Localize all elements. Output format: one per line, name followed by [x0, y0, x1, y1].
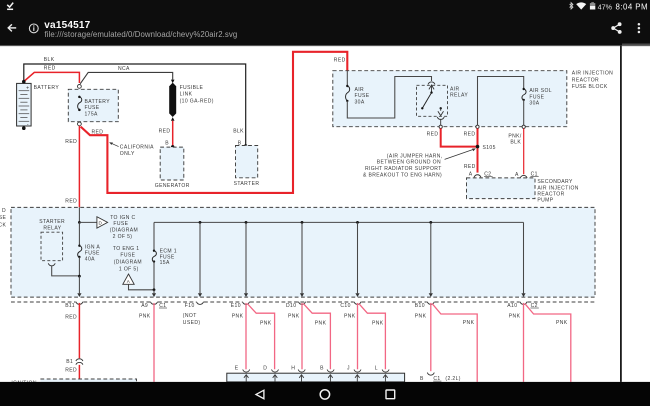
svg-text:ONLY: ONLY — [120, 151, 135, 157]
svg-text:USED): USED) — [183, 320, 201, 326]
svg-text:A: A — [469, 171, 473, 177]
svg-text:B: B — [165, 141, 169, 147]
svg-text:(2.2L): (2.2L) — [445, 376, 460, 382]
svg-text:15A: 15A — [160, 260, 170, 266]
svg-text:PNK: PNK — [344, 313, 356, 319]
svg-text:A9: A9 — [141, 303, 148, 309]
svg-text:BLK: BLK — [510, 140, 521, 146]
svg-text:FUSE: FUSE — [355, 93, 370, 99]
svg-text:B11: B11 — [65, 303, 75, 309]
svg-text:S105: S105 — [483, 145, 496, 151]
svg-text:RELAY: RELAY — [450, 93, 468, 99]
svg-text:GENERATOR: GENERATOR — [155, 183, 190, 189]
svg-text:(10 GA-RED): (10 GA-RED) — [180, 99, 214, 105]
svg-text:AIR SOL: AIR SOL — [529, 88, 552, 94]
svg-text:D: D — [2, 208, 6, 214]
svg-text:RED: RED — [65, 199, 77, 205]
svg-text:STARTER: STARTER — [39, 219, 65, 225]
svg-text:A: A — [515, 172, 519, 178]
svg-text:FUSE: FUSE — [85, 105, 100, 111]
svg-text:PNK: PNK — [288, 313, 300, 319]
svg-text:BLK: BLK — [44, 57, 55, 63]
svg-text:A10: A10 — [507, 303, 517, 309]
svg-text:PNK: PNK — [556, 320, 568, 326]
svg-text:TO IGN C: TO IGN C — [110, 215, 135, 221]
svg-text:FUSE BLOCK: FUSE BLOCK — [572, 84, 608, 90]
svg-text:PNK: PNK — [372, 320, 384, 326]
svg-text:RED: RED — [334, 58, 346, 64]
svg-text:FUSE: FUSE — [529, 94, 544, 100]
svg-text:PNK: PNK — [260, 320, 272, 326]
svg-text:(DIAGRAM: (DIAGRAM — [110, 228, 138, 234]
svg-text:PNK: PNK — [415, 313, 427, 319]
svg-text:(DIAGRAM: (DIAGRAM — [114, 259, 142, 265]
svg-text:LINK: LINK — [180, 92, 193, 98]
svg-text:47%: 47% — [598, 2, 613, 11]
svg-text:AIR: AIR — [450, 86, 460, 92]
svg-text:B: B — [320, 365, 324, 371]
svg-text:(NOT: (NOT — [183, 313, 197, 319]
svg-text:TO ENG 1: TO ENG 1 — [113, 246, 140, 252]
svg-text:RED: RED — [65, 314, 77, 320]
svg-text:RED: RED — [65, 139, 77, 145]
svg-text:RED: RED — [464, 164, 476, 170]
svg-text:8:04 PM: 8:04 PM — [616, 3, 649, 12]
svg-text:1 OF 5): 1 OF 5) — [119, 267, 139, 273]
svg-text:PNK: PNK — [232, 313, 244, 319]
svg-text:FUSIBLE: FUSIBLE — [180, 85, 204, 91]
svg-text:B1: B1 — [66, 359, 73, 365]
svg-text:SECONDARY: SECONDARY — [537, 179, 573, 185]
svg-text:2 OF 5): 2 OF 5) — [113, 234, 133, 240]
svg-text:NCA: NCA — [118, 66, 130, 72]
svg-text:RED: RED — [92, 129, 104, 135]
svg-text:BATTERY: BATTERY — [34, 85, 60, 91]
svg-text:file:///storage/emulated/0/Dow: file:///storage/emulated/0/Download/chev… — [45, 30, 238, 39]
svg-text:B10: B10 — [415, 303, 425, 309]
svg-text:SE: SE — [0, 215, 6, 221]
svg-text:40A: 40A — [85, 256, 95, 262]
svg-text:FUSE: FUSE — [120, 253, 135, 259]
svg-text:B: B — [420, 376, 424, 382]
svg-text:D10: D10 — [286, 303, 296, 309]
svg-text:30A: 30A — [529, 101, 539, 107]
svg-text:D: D — [263, 365, 267, 371]
svg-text:RED: RED — [159, 129, 171, 135]
svg-text:E: E — [235, 365, 239, 371]
svg-text:AIR: AIR — [355, 87, 365, 93]
svg-text:RED: RED — [65, 368, 77, 374]
svg-text:BETWEEN GROUND ON: BETWEEN GROUND ON — [377, 159, 441, 165]
svg-text:& BREAKOUT TO ENG HARN): & BREAKOUT TO ENG HARN) — [363, 173, 442, 179]
svg-text:RED: RED — [44, 66, 56, 72]
svg-text:RIGHT RADIATOR SUPPORT: RIGHT RADIATOR SUPPORT — [365, 166, 442, 172]
svg-text:175A: 175A — [85, 111, 99, 117]
svg-text:FUSE: FUSE — [113, 221, 128, 227]
svg-text:PNK: PNK — [509, 313, 521, 319]
svg-text:REACTOR: REACTOR — [572, 77, 599, 83]
svg-text:PNK: PNK — [139, 313, 151, 319]
svg-text:E10: E10 — [231, 303, 241, 309]
svg-text:STARTER: STARTER — [234, 181, 260, 187]
svg-text:RELAY: RELAY — [43, 225, 61, 231]
svg-text:AIR INJECTION: AIR INJECTION — [572, 70, 613, 76]
svg-text:J: J — [347, 365, 350, 371]
svg-text:RED: RED — [427, 132, 439, 138]
svg-text:L: L — [375, 365, 378, 371]
svg-text:AIR INJECTION: AIR INJECTION — [537, 185, 578, 191]
svg-text:CALIFORNIA: CALIFORNIA — [120, 144, 154, 150]
svg-text:30A: 30A — [355, 99, 365, 105]
svg-text:PNK: PNK — [463, 320, 475, 326]
svg-text:RED: RED — [464, 132, 476, 138]
svg-text:H: H — [291, 365, 295, 371]
svg-text:F10: F10 — [185, 303, 195, 309]
svg-text:PNK: PNK — [315, 320, 327, 326]
svg-text:CK: CK — [0, 223, 6, 229]
svg-text:PUMP: PUMP — [537, 198, 553, 204]
svg-text:REACTOR: REACTOR — [537, 192, 564, 198]
svg-text:BLK: BLK — [233, 129, 244, 135]
svg-text:C10: C10 — [340, 303, 350, 309]
